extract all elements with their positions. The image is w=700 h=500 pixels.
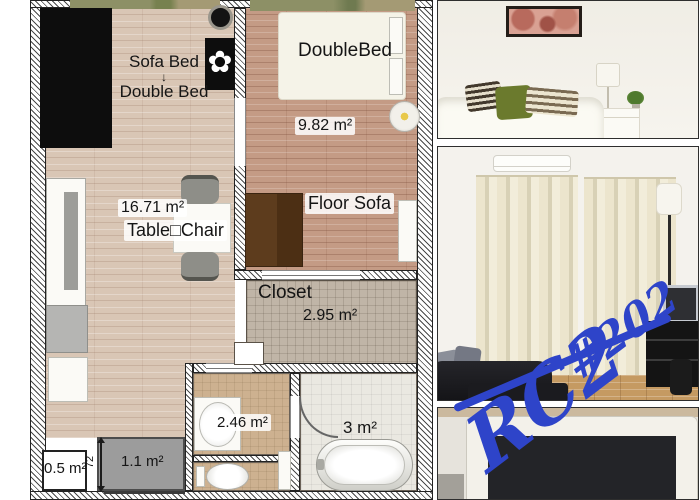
sofa-bed-label: Sofa Bed ↓ Double Bed xyxy=(106,52,222,102)
table-lamp-pole xyxy=(607,87,609,109)
bed-pillow-2 xyxy=(389,58,403,95)
toilet-bowl xyxy=(206,463,249,490)
sofa-bed xyxy=(40,8,112,148)
sofa-bed-label-line2: Double Bed xyxy=(106,82,222,102)
floor-sofa xyxy=(245,193,303,267)
toilet-door xyxy=(278,451,291,490)
double-bed-label: DoubleBed xyxy=(280,40,410,62)
bathtub-inner xyxy=(324,445,405,485)
entrance-step-line xyxy=(104,491,185,494)
closet-sliding-door xyxy=(262,270,360,280)
kitchen-unit xyxy=(46,305,88,353)
closet-label: Closet xyxy=(258,282,312,304)
closet-area-label: 2.95 m² xyxy=(303,307,357,325)
toilet-tank xyxy=(196,466,205,487)
dimension-arrow-top xyxy=(97,437,105,443)
entrance-area-label: 1.1 m² xyxy=(121,453,164,470)
storage-area-label: 0.5 m² xyxy=(44,460,86,477)
wall-bath-left xyxy=(185,363,193,491)
bath-faucet xyxy=(317,459,324,470)
sofa-bed-label-line1: Sofa Bed xyxy=(106,52,222,72)
framed-art xyxy=(506,6,582,37)
curtain-left xyxy=(476,175,578,389)
floor-sofa-label: Floor Sofa xyxy=(305,193,394,214)
washroom-area-label: 2.46 m² xyxy=(214,414,271,431)
white-tv-screen xyxy=(488,436,676,500)
closet-notch xyxy=(234,342,264,365)
trash-bin xyxy=(670,359,692,395)
wall-bottom xyxy=(30,491,433,500)
air-conditioner xyxy=(493,155,571,172)
floor-plan: ✿ Sofa Bed ↓ Double Bed DoubleBed 9 xyxy=(0,0,433,500)
bedroom-entry-door xyxy=(398,200,417,262)
bath-area-label: 3 m² xyxy=(343,418,377,438)
dimension-line xyxy=(100,441,102,488)
washing-machine xyxy=(48,357,88,402)
side-object xyxy=(438,474,464,500)
living-room-photo xyxy=(437,146,699,401)
ceiling-light xyxy=(389,101,420,132)
table-chair-label: Table□Chair xyxy=(124,220,227,241)
bedroom-area-label: 9.82 m² xyxy=(295,117,355,135)
table-lamp-shade xyxy=(596,63,620,87)
plant-pot xyxy=(208,5,233,30)
bedroom-door-opening xyxy=(234,98,246,166)
wall-right xyxy=(417,0,433,500)
chair-south xyxy=(181,252,219,281)
counter-panel xyxy=(64,192,78,290)
sofa-bed-label-arrow: ↓ xyxy=(106,72,222,82)
balcony-plants-2 xyxy=(250,0,415,11)
houseplant xyxy=(627,91,644,105)
entrance-width-label: 72 xyxy=(84,456,96,468)
living-area-label: 16.71 m² xyxy=(118,199,187,217)
wall-washroom-toilet xyxy=(193,455,290,462)
floor-lamp-shade xyxy=(656,183,682,215)
listing-image: ✿ Sofa Bed ↓ Double Bed DoubleBed 9 xyxy=(0,0,700,500)
bedroom-photo xyxy=(437,0,699,139)
black-sofa-seat xyxy=(468,383,568,401)
pillow-striped-brown xyxy=(525,87,579,117)
detail-photo xyxy=(437,407,699,500)
tv xyxy=(663,285,699,323)
